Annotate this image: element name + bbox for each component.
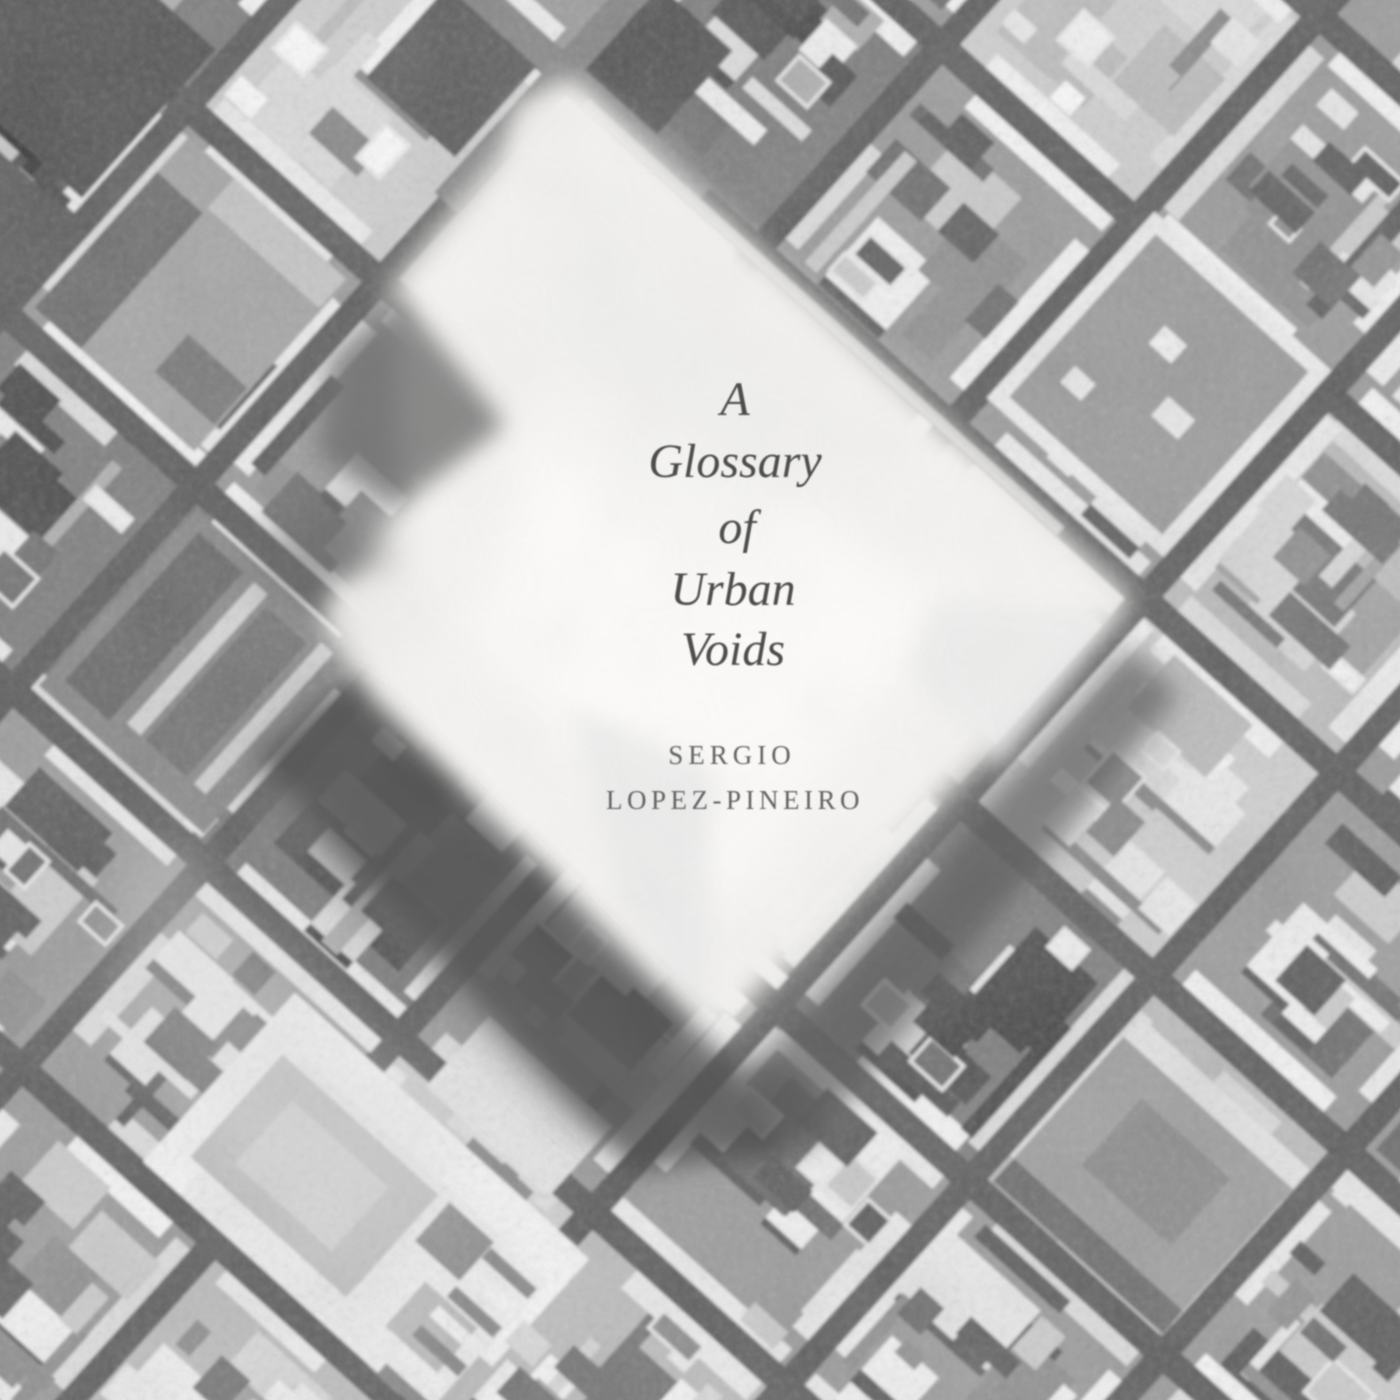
svg-text:A: A — [717, 373, 750, 426]
svg-text:SERGIO: SERGIO — [668, 740, 796, 770]
svg-text:Urban: Urban — [670, 563, 795, 616]
svg-text:LOPEZ-PINEIRO: LOPEZ-PINEIRO — [606, 785, 864, 815]
svg-text:of: of — [718, 501, 761, 554]
svg-text:Glossary: Glossary — [648, 435, 822, 488]
svg-text:Voids: Voids — [681, 623, 785, 676]
